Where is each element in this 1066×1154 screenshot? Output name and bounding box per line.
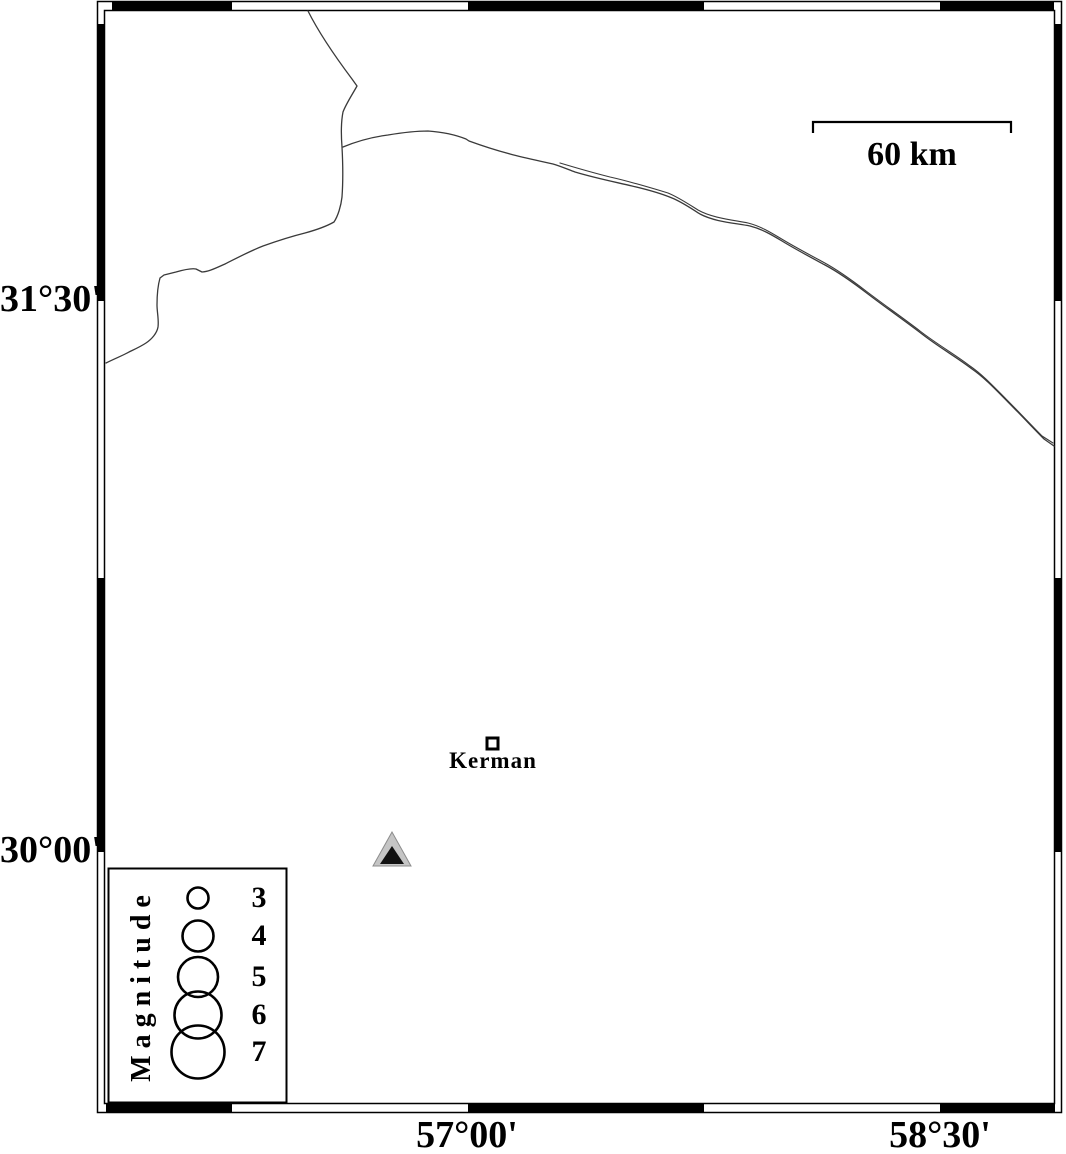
legend-value-mag3: 3 — [219, 879, 299, 917]
scale-bar-label: 60 km — [792, 134, 1032, 176]
map-figure: 31°30' 30°00' 57°00' 58°30' 60 km Kerman… — [0, 0, 1066, 1154]
legend-value-mag5: 5 — [219, 958, 299, 996]
y-axis-label-31-30: 31°30' — [0, 276, 90, 322]
city-label-kerman: Kerman — [403, 747, 583, 775]
legend-value-mag4: 4 — [219, 917, 299, 955]
x-axis-label-57-00: 57°00' — [347, 1112, 587, 1154]
legend-title: Magnitude — [125, 865, 159, 1105]
x-axis-label-58-30: 58°30' — [820, 1112, 1060, 1154]
y-axis-label-30-00: 30°00' — [0, 827, 90, 873]
legend-value-mag6: 6 — [219, 996, 299, 1034]
legend-value-mag7: 7 — [219, 1033, 299, 1071]
